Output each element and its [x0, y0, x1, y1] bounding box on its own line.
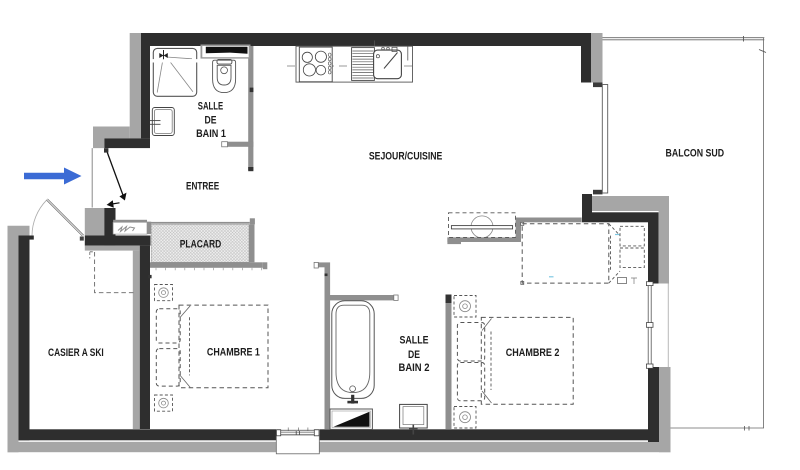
- svg-text:BAIN 1: BAIN 1: [196, 128, 226, 140]
- svg-text:CHAMBRE 1: CHAMBRE 1: [207, 347, 260, 359]
- svg-text:SEJOUR/CUISINE: SEJOUR/CUISINE: [369, 150, 443, 162]
- svg-text:CASIER A SKI: CASIER A SKI: [48, 347, 104, 359]
- svg-text:SALLE: SALLE: [400, 335, 429, 347]
- svg-text:SALLE: SALLE: [198, 101, 223, 113]
- svg-text:ENTREE: ENTREE: [186, 181, 219, 193]
- svg-text:DE: DE: [205, 114, 217, 126]
- svg-text:BAIN 2: BAIN 2: [399, 362, 430, 374]
- svg-text:DE: DE: [408, 349, 420, 361]
- svg-text:CHAMBRE 2: CHAMBRE 2: [506, 347, 560, 359]
- svg-text:PLACARD: PLACARD: [180, 238, 222, 250]
- svg-text:BALCON SUD: BALCON SUD: [666, 147, 725, 159]
